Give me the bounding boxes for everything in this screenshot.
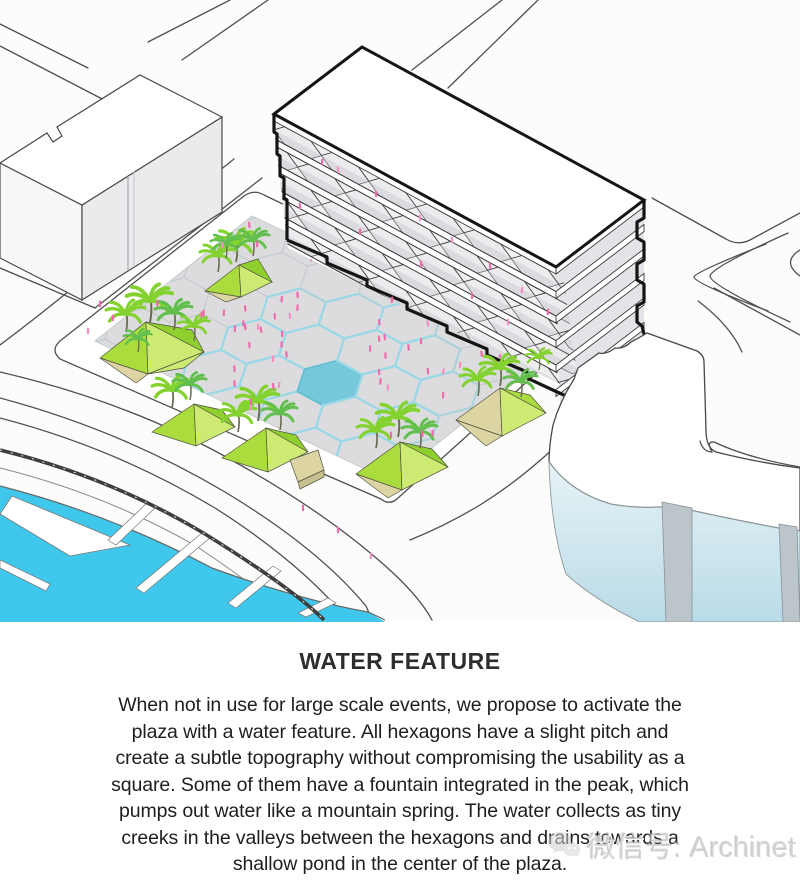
caption-line: plaza with a water feature. All hexagons…: [0, 719, 800, 746]
caption-line: creeks in the valleys between the hexago…: [0, 825, 800, 852]
page: WATER FEATURE When not in use for large …: [0, 0, 800, 880]
caption-line: square. Some of them have a fountain int…: [0, 772, 800, 799]
caption-title: WATER FEATURE: [0, 648, 800, 675]
caption-line: pumps out water like a mountain spring. …: [0, 798, 800, 825]
caption: WATER FEATURE When not in use for large …: [0, 622, 800, 878]
quay-fin: [662, 502, 692, 622]
site-illustration: [0, 0, 800, 622]
caption-line: create a subtle topography without compr…: [0, 745, 800, 772]
caption-line: shallow pond in the center of the plaza.: [0, 851, 800, 878]
quay-fin: [779, 524, 800, 622]
caption-body: When not in use for large scale events, …: [0, 692, 800, 878]
caption-line: When not in use for large scale events, …: [0, 692, 800, 719]
